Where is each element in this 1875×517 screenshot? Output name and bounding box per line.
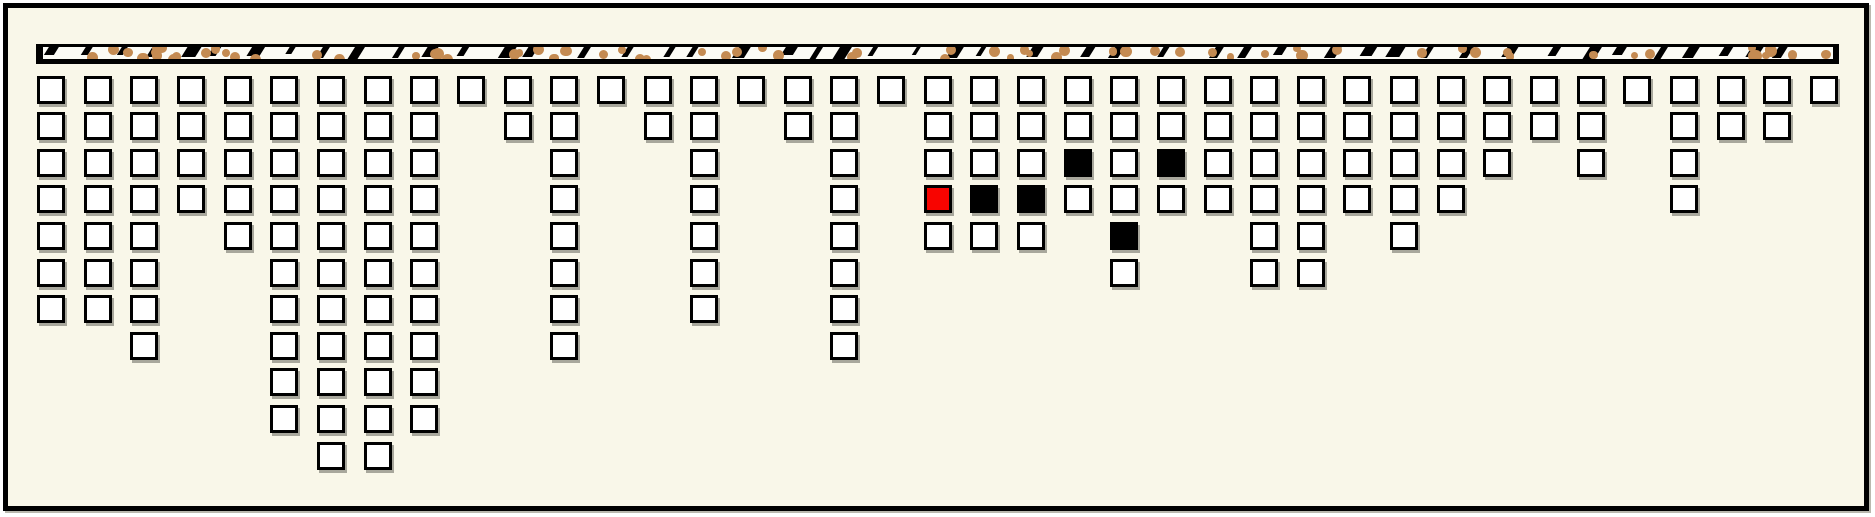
grid-square[interactable] xyxy=(1204,112,1232,140)
grid-square[interactable] xyxy=(130,222,158,250)
grid-square[interactable] xyxy=(1343,185,1371,213)
grid-square[interactable] xyxy=(1250,185,1278,213)
squares-board xyxy=(0,0,1875,517)
grid-square[interactable] xyxy=(1343,149,1371,177)
grid-square[interactable] xyxy=(1297,149,1325,177)
grid-square[interactable] xyxy=(1437,76,1465,104)
grid-square[interactable] xyxy=(1250,76,1278,104)
grid-square[interactable] xyxy=(317,259,345,287)
black-square[interactable] xyxy=(1017,185,1045,213)
grid-square[interactable] xyxy=(1763,76,1791,104)
grid-square[interactable] xyxy=(177,112,205,140)
grid-square[interactable] xyxy=(270,405,298,433)
grid-square[interactable] xyxy=(177,185,205,213)
grid-square[interactable] xyxy=(84,149,112,177)
grid-square[interactable] xyxy=(1297,259,1325,287)
grid-square[interactable] xyxy=(830,222,858,250)
grid-square[interactable] xyxy=(1437,185,1465,213)
grid-square[interactable] xyxy=(504,76,532,104)
grid-square[interactable] xyxy=(1483,149,1511,177)
grid-square[interactable] xyxy=(364,295,392,323)
grid-square[interactable] xyxy=(410,76,438,104)
grid-square[interactable] xyxy=(410,185,438,213)
grid-square[interactable] xyxy=(1670,76,1698,104)
grid-square[interactable] xyxy=(550,112,578,140)
grid-square[interactable] xyxy=(1017,222,1045,250)
grid-square[interactable] xyxy=(410,112,438,140)
grid-square[interactable] xyxy=(1530,76,1558,104)
grid-square[interactable] xyxy=(84,259,112,287)
grid-square[interactable] xyxy=(1623,76,1651,104)
grid-square[interactable] xyxy=(37,295,65,323)
grid-square[interactable] xyxy=(690,185,718,213)
grid-square[interactable] xyxy=(130,112,158,140)
grid-square[interactable] xyxy=(1064,185,1092,213)
grid-square[interactable] xyxy=(270,112,298,140)
grid-square[interactable] xyxy=(1717,112,1745,140)
grid-square[interactable] xyxy=(364,259,392,287)
grid-square[interactable] xyxy=(1017,112,1045,140)
grid-square[interactable] xyxy=(830,295,858,323)
grid-square[interactable] xyxy=(830,185,858,213)
grid-square[interactable] xyxy=(1110,185,1138,213)
grid-square[interactable] xyxy=(317,442,345,470)
grid-square[interactable] xyxy=(1297,112,1325,140)
grid-square[interactable] xyxy=(830,76,858,104)
grid-square[interactable] xyxy=(1110,259,1138,287)
grid-square[interactable] xyxy=(1390,185,1418,213)
grid-square[interactable] xyxy=(84,112,112,140)
grid-square[interactable] xyxy=(1297,222,1325,250)
grid-square[interactable] xyxy=(270,222,298,250)
grid-square[interactable] xyxy=(224,76,252,104)
grid-square[interactable] xyxy=(364,405,392,433)
grid-square[interactable] xyxy=(830,259,858,287)
grid-square[interactable] xyxy=(130,259,158,287)
grid-square[interactable] xyxy=(1064,112,1092,140)
grid-square[interactable] xyxy=(1577,149,1605,177)
grid-square[interactable] xyxy=(37,112,65,140)
grid-square[interactable] xyxy=(317,332,345,360)
grid-square[interactable] xyxy=(84,185,112,213)
grid-square[interactable] xyxy=(1157,185,1185,213)
grid-square[interactable] xyxy=(1390,76,1418,104)
grid-square[interactable] xyxy=(690,222,718,250)
grid-square[interactable] xyxy=(504,112,532,140)
grid-square[interactable] xyxy=(457,76,485,104)
grid-square[interactable] xyxy=(130,185,158,213)
grid-square[interactable] xyxy=(1343,76,1371,104)
grid-square[interactable] xyxy=(1670,185,1698,213)
grid-square[interactable] xyxy=(1670,112,1698,140)
grid-square[interactable] xyxy=(410,405,438,433)
grid-square[interactable] xyxy=(317,185,345,213)
grid-square[interactable] xyxy=(1157,112,1185,140)
grid-square[interactable] xyxy=(1110,76,1138,104)
grid-square[interactable] xyxy=(970,149,998,177)
grid-square[interactable] xyxy=(550,259,578,287)
grid-square[interactable] xyxy=(830,112,858,140)
grid-square[interactable] xyxy=(1157,76,1185,104)
grid-square[interactable] xyxy=(970,112,998,140)
grid-square[interactable] xyxy=(1530,112,1558,140)
grid-square[interactable] xyxy=(1250,149,1278,177)
grid-square[interactable] xyxy=(1437,149,1465,177)
grid-square[interactable] xyxy=(130,332,158,360)
grid-square[interactable] xyxy=(970,222,998,250)
grid-square[interactable] xyxy=(364,76,392,104)
grid-square[interactable] xyxy=(364,185,392,213)
grid-square[interactable] xyxy=(877,76,905,104)
grid-square[interactable] xyxy=(317,149,345,177)
grid-square[interactable] xyxy=(924,76,952,104)
grid-square[interactable] xyxy=(1763,112,1791,140)
grid-square[interactable] xyxy=(177,76,205,104)
grid-square[interactable] xyxy=(550,185,578,213)
grid-square[interactable] xyxy=(1343,112,1371,140)
grid-square[interactable] xyxy=(177,149,205,177)
grid-square[interactable] xyxy=(597,76,625,104)
grid-square[interactable] xyxy=(317,222,345,250)
grid-square[interactable] xyxy=(317,112,345,140)
grid-square[interactable] xyxy=(224,185,252,213)
grid-square[interactable] xyxy=(1204,149,1232,177)
black-square[interactable] xyxy=(970,185,998,213)
grid-square[interactable] xyxy=(784,76,812,104)
grid-square[interactable] xyxy=(924,149,952,177)
grid-square[interactable] xyxy=(1390,222,1418,250)
grid-square[interactable] xyxy=(1110,112,1138,140)
grid-square[interactable] xyxy=(364,112,392,140)
grid-square[interactable] xyxy=(270,149,298,177)
grid-square[interactable] xyxy=(270,368,298,396)
grid-square[interactable] xyxy=(270,295,298,323)
grid-square[interactable] xyxy=(410,149,438,177)
grid-square[interactable] xyxy=(1810,76,1838,104)
grid-square[interactable] xyxy=(364,149,392,177)
grid-square[interactable] xyxy=(644,112,672,140)
grid-square[interactable] xyxy=(1483,112,1511,140)
grid-square[interactable] xyxy=(1017,149,1045,177)
grid-square[interactable] xyxy=(550,332,578,360)
grid-square[interactable] xyxy=(690,259,718,287)
grid-square[interactable] xyxy=(830,332,858,360)
grid-square[interactable] xyxy=(1483,76,1511,104)
grid-square[interactable] xyxy=(364,368,392,396)
grid-square[interactable] xyxy=(644,76,672,104)
grid-square[interactable] xyxy=(224,222,252,250)
red-square[interactable] xyxy=(924,185,952,213)
grid-square[interactable] xyxy=(84,295,112,323)
grid-square[interactable] xyxy=(1670,149,1698,177)
black-square[interactable] xyxy=(1157,149,1185,177)
grid-square[interactable] xyxy=(410,295,438,323)
grid-square[interactable] xyxy=(550,295,578,323)
grid-square[interactable] xyxy=(84,76,112,104)
grid-square[interactable] xyxy=(924,112,952,140)
grid-square[interactable] xyxy=(550,222,578,250)
grid-square[interactable] xyxy=(37,185,65,213)
grid-square[interactable] xyxy=(1250,259,1278,287)
grid-square[interactable] xyxy=(737,76,765,104)
grid-square[interactable] xyxy=(37,222,65,250)
grid-square[interactable] xyxy=(317,76,345,104)
black-square[interactable] xyxy=(1110,222,1138,250)
grid-square[interactable] xyxy=(224,149,252,177)
grid-square[interactable] xyxy=(690,112,718,140)
grid-square[interactable] xyxy=(37,76,65,104)
grid-square[interactable] xyxy=(924,222,952,250)
grid-square[interactable] xyxy=(1577,112,1605,140)
grid-square[interactable] xyxy=(270,332,298,360)
grid-square[interactable] xyxy=(1017,76,1045,104)
grid-square[interactable] xyxy=(690,295,718,323)
grid-square[interactable] xyxy=(1390,112,1418,140)
grid-square[interactable] xyxy=(1297,185,1325,213)
grid-square[interactable] xyxy=(270,185,298,213)
grid-square[interactable] xyxy=(970,76,998,104)
grid-square[interactable] xyxy=(37,149,65,177)
grid-square[interactable] xyxy=(224,112,252,140)
grid-square[interactable] xyxy=(317,405,345,433)
game-stage xyxy=(0,0,1875,517)
grid-square[interactable] xyxy=(270,76,298,104)
grid-square[interactable] xyxy=(84,222,112,250)
grid-square[interactable] xyxy=(830,149,858,177)
grid-square[interactable] xyxy=(690,149,718,177)
grid-square[interactable] xyxy=(364,442,392,470)
grid-square[interactable] xyxy=(550,149,578,177)
grid-square[interactable] xyxy=(317,368,345,396)
grid-square[interactable] xyxy=(550,76,578,104)
grid-square[interactable] xyxy=(130,149,158,177)
grid-square[interactable] xyxy=(1717,76,1745,104)
grid-square[interactable] xyxy=(410,259,438,287)
grid-square[interactable] xyxy=(1437,112,1465,140)
grid-square[interactable] xyxy=(130,76,158,104)
grid-square[interactable] xyxy=(410,332,438,360)
grid-square[interactable] xyxy=(270,259,298,287)
grid-square[interactable] xyxy=(364,332,392,360)
grid-square[interactable] xyxy=(410,222,438,250)
grid-square[interactable] xyxy=(130,295,158,323)
grid-square[interactable] xyxy=(1390,149,1418,177)
grid-square[interactable] xyxy=(1204,76,1232,104)
black-square[interactable] xyxy=(1064,149,1092,177)
grid-square[interactable] xyxy=(317,295,345,323)
grid-square[interactable] xyxy=(364,222,392,250)
grid-square[interactable] xyxy=(690,76,718,104)
grid-square[interactable] xyxy=(1110,149,1138,177)
grid-square[interactable] xyxy=(37,259,65,287)
grid-square[interactable] xyxy=(410,368,438,396)
grid-square[interactable] xyxy=(1204,185,1232,213)
grid-square[interactable] xyxy=(1577,76,1605,104)
grid-square[interactable] xyxy=(784,112,812,140)
grid-square[interactable] xyxy=(1297,76,1325,104)
grid-square[interactable] xyxy=(1064,76,1092,104)
grid-square[interactable] xyxy=(1250,112,1278,140)
grid-square[interactable] xyxy=(1250,222,1278,250)
